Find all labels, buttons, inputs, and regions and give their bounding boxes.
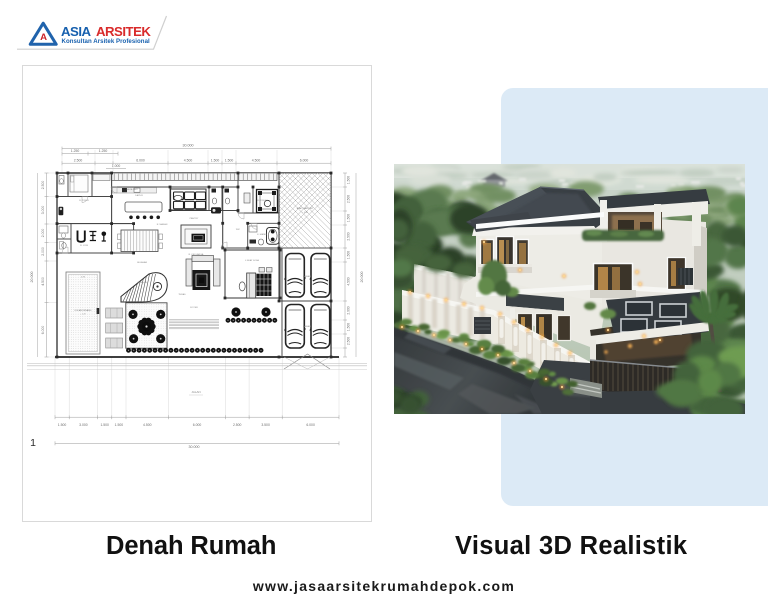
svg-text:2.500: 2.500 [347,195,351,203]
svg-text:20.000: 20.000 [360,272,364,283]
svg-text:ASIA: ASIA [61,24,91,39]
svg-text:3.000: 3.000 [41,206,45,215]
svg-text:R. GYM: R. GYM [80,245,88,247]
svg-text:2.500: 2.500 [74,159,83,163]
svg-text:6.000: 6.000 [300,159,309,163]
svg-text:20.000: 20.000 [30,272,34,283]
svg-text:1.250: 1.250 [71,149,80,153]
svg-text:4 SEAT SOFA: 4 SEAT SOFA [245,259,259,262]
svg-text:R. MAKAN: R. MAKAN [157,223,168,226]
svg-text:1.500: 1.500 [100,423,109,427]
svg-text:KOLAM RENANG: KOLAM RENANG [75,309,92,312]
svg-text:GARASI: GARASI [303,275,312,278]
svg-text:6.000: 6.000 [306,423,315,427]
svg-text:2.000: 2.000 [347,306,351,314]
svg-text:1.250: 1.250 [99,149,108,153]
svg-text:4.500: 4.500 [41,277,45,286]
svg-text:6.000: 6.000 [136,159,145,163]
svg-text:4.500: 4.500 [347,277,351,285]
svg-text:TANGGA: TANGGA [137,281,147,284]
svg-text:1.500: 1.500 [115,423,124,427]
svg-text:2.500: 2.500 [233,423,242,427]
svg-text:1: 1 [30,437,36,449]
svg-text:1.500: 1.500 [347,251,351,259]
svg-text:30.000: 30.000 [189,445,200,449]
svg-text:R. TIDUR: R. TIDUR [257,200,267,202]
svg-text:2.500: 2.500 [347,337,351,345]
svg-text:1.500: 1.500 [58,423,67,427]
svg-text:TERAS: TERAS [178,293,186,296]
svg-text:4.500: 4.500 [252,159,261,163]
svg-text:+ 3.50: + 3.50 [302,212,309,214]
svg-text:30.000: 30.000 [183,144,194,148]
svg-text:A: A [40,32,47,43]
svg-text:6.000: 6.000 [41,326,45,335]
svg-text:1.500: 1.500 [225,159,234,163]
svg-text:FOYER: FOYER [190,307,198,309]
svg-text:GARASI: GARASI [303,325,312,328]
svg-text:2.000: 2.000 [41,229,45,238]
svg-text:4.500: 4.500 [143,423,152,427]
svg-text:DAPUR: DAPUR [135,194,143,197]
svg-text:1.500: 1.500 [347,214,351,222]
svg-text:1.500: 1.500 [211,159,220,163]
svg-text:4.500: 4.500 [184,159,193,163]
svg-text:MEJA SAJI: MEJA SAJI [127,188,138,191]
svg-text:R. TIDUR: R. TIDUR [79,200,89,202]
svg-text:2.500: 2.500 [347,232,351,240]
svg-text:JALAN: JALAN [191,390,200,394]
svg-text:1.500: 1.500 [347,323,351,331]
svg-text:ATAP CARPORT: ATAP CARPORT [297,207,314,210]
svg-text:2.500: 2.500 [41,181,45,190]
svg-text:ARSITEK: ARSITEK [96,24,151,39]
svg-text:SELASAR: SELASAR [137,261,148,264]
svg-text:Konsultan Arsitek Profesional: Konsultan Arsitek Profesional [62,38,151,45]
svg-text:R. KELUARGA: R. KELUARGA [189,253,204,256]
svg-text:3.000: 3.000 [79,423,88,427]
svg-text:PANTRY: PANTRY [190,217,199,220]
svg-text:1.500: 1.500 [347,176,351,184]
svg-text:3.500: 3.500 [261,423,270,427]
svg-text:2.000: 2.000 [41,247,45,256]
svg-text:WIC: WIC [236,229,241,231]
svg-text:6.000: 6.000 [193,423,202,427]
svg-text:+ 1.20: + 1.20 [80,314,85,316]
svg-text:K. MANDI: K. MANDI [257,233,267,236]
